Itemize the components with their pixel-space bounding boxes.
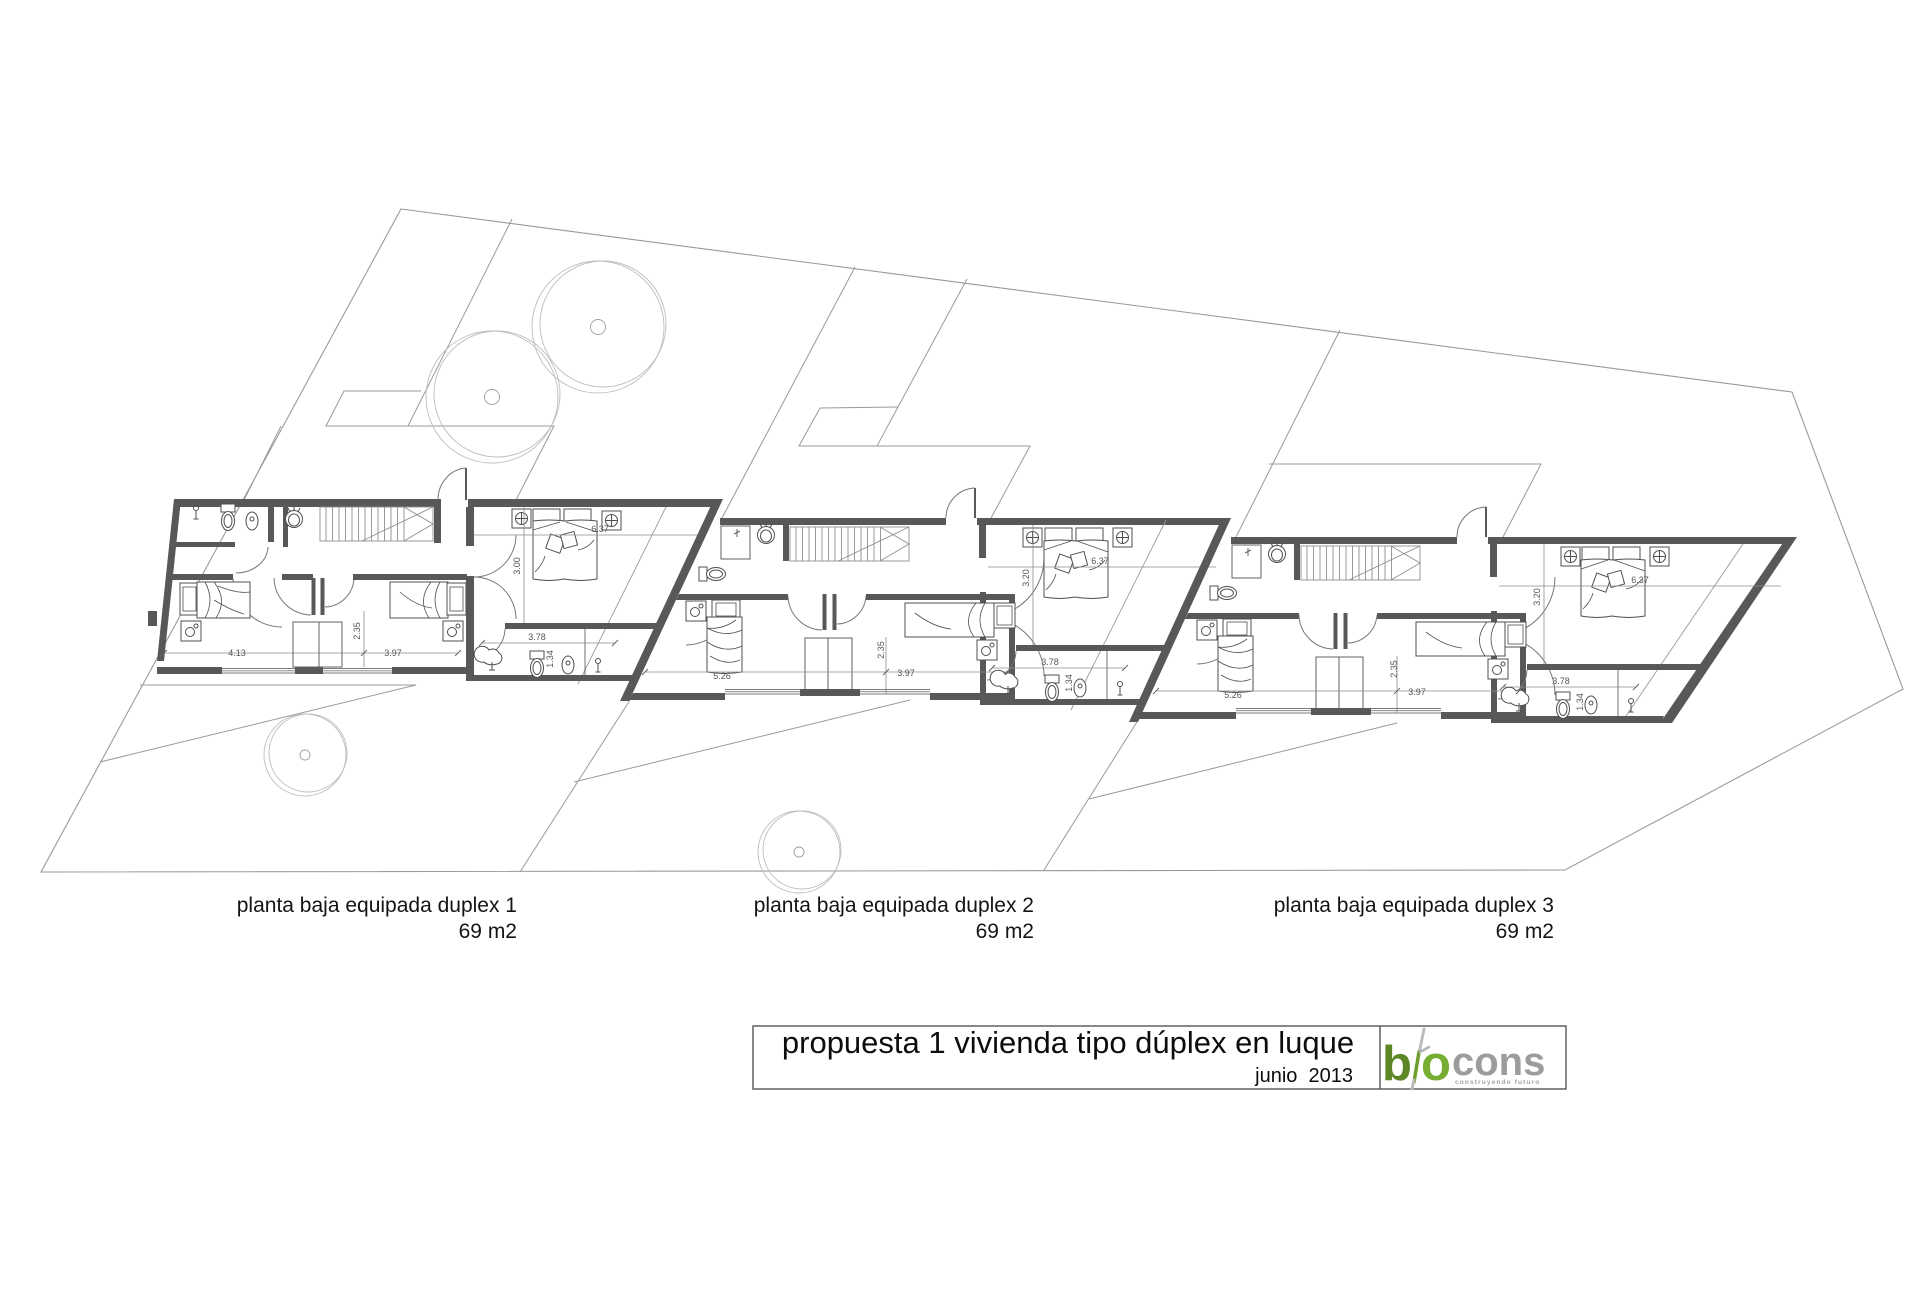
svg-text:3.20: 3.20 — [1021, 569, 1031, 587]
svg-text:4.13: 4.13 — [228, 648, 246, 658]
svg-text:3.78: 3.78 — [1552, 676, 1570, 686]
svg-text:1.34: 1.34 — [1575, 693, 1585, 711]
svg-text:3.97: 3.97 — [897, 668, 915, 678]
svg-text:2.35: 2.35 — [876, 641, 886, 659]
svg-text:5.26: 5.26 — [1224, 690, 1242, 700]
svg-text:2.35: 2.35 — [352, 622, 362, 640]
svg-text:o: o — [1421, 1037, 1451, 1091]
svg-text:planta baja equipada duplex 2: planta baja equipada duplex 2 — [754, 894, 1034, 917]
svg-text:planta baja equipada duplex 1: planta baja equipada duplex 1 — [237, 894, 517, 917]
svg-text:3.00: 3.00 — [512, 557, 522, 575]
svg-text:cons: cons — [1452, 1040, 1545, 1084]
svg-text:69 m2: 69 m2 — [976, 920, 1034, 943]
svg-text:69 m2: 69 m2 — [1496, 920, 1554, 943]
svg-text:junio 2013: junio 2013 — [1254, 1065, 1353, 1087]
svg-text:propuesta 1 vivienda tipo dúpl: propuesta 1 vivienda tipo dúplex en luqu… — [782, 1025, 1354, 1060]
svg-text:3.97: 3.97 — [1408, 687, 1426, 697]
svg-text:2.35: 2.35 — [1389, 660, 1399, 678]
svg-text:5.26: 5.26 — [713, 671, 731, 681]
svg-text:6.37: 6.37 — [1091, 556, 1109, 566]
svg-text:1.34: 1.34 — [545, 650, 555, 668]
svg-text:3.97: 3.97 — [384, 648, 402, 658]
svg-text:3.20: 3.20 — [1532, 588, 1542, 606]
svg-text:construyendo futuro: construyendo futuro — [1455, 1079, 1540, 1086]
svg-text:3.78: 3.78 — [528, 632, 546, 642]
svg-text:planta baja equipada duplex 3: planta baja equipada duplex 3 — [1274, 894, 1554, 917]
svg-text:3.78: 3.78 — [1041, 657, 1059, 667]
svg-text:1.34: 1.34 — [1064, 674, 1074, 692]
svg-text:6.37: 6.37 — [1631, 575, 1649, 585]
svg-text:69 m2: 69 m2 — [459, 920, 517, 943]
svg-text:b: b — [1382, 1037, 1412, 1091]
svg-text:6.37: 6.37 — [591, 524, 609, 534]
